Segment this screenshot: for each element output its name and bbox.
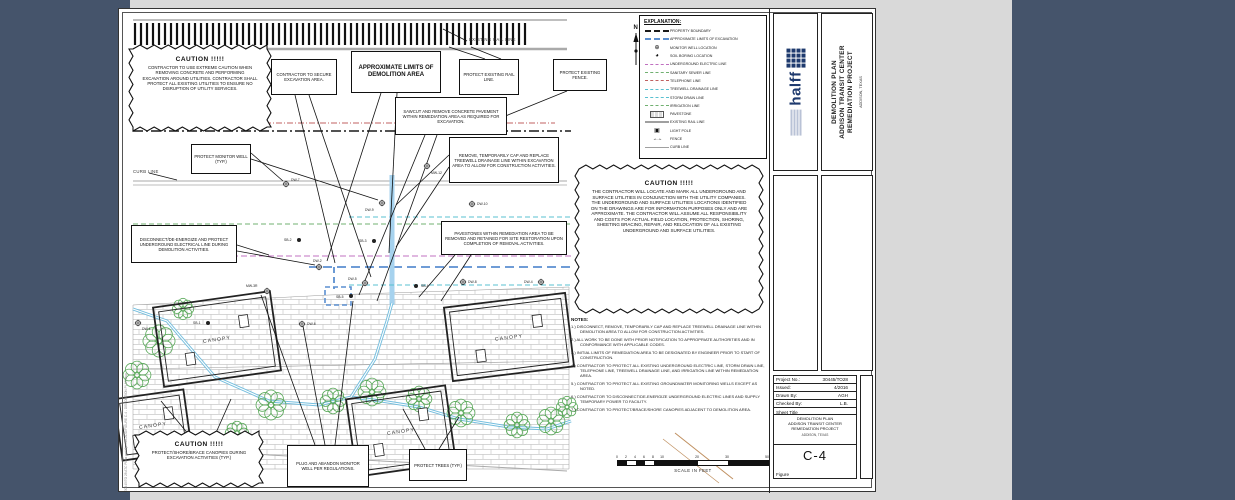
row-value: 4/2016 bbox=[834, 385, 848, 390]
titleblock-empty-box bbox=[773, 175, 818, 371]
note-item: 4.) CONTRACTOR TO PROTECT ALL EXISTING U… bbox=[571, 364, 767, 379]
notes-title: NOTES: bbox=[571, 317, 767, 322]
titleblock-company-box: halff bbox=[773, 13, 818, 171]
soil-boring-icon: SB-2 bbox=[284, 238, 301, 242]
figure-number: C-4 bbox=[774, 445, 856, 463]
legend-items: PROPERTY BOUNDARYAPPROXIMATE LIMITS OF E… bbox=[644, 27, 762, 151]
legend-item-label: FENCE bbox=[670, 137, 682, 141]
well-label: MW-12 bbox=[431, 171, 442, 175]
scale-segment bbox=[627, 461, 636, 465]
scale-segment bbox=[654, 461, 663, 465]
legend-swatch-line-icon bbox=[644, 94, 670, 102]
north-arrow-icon: N bbox=[633, 25, 638, 65]
scale-number: 2 bbox=[625, 455, 627, 459]
well-label: DW-10 bbox=[477, 202, 488, 206]
legend-swatch-pave-icon bbox=[644, 110, 670, 118]
sheet-title-label: Sheet Title bbox=[774, 408, 856, 415]
legend-item-label: PROPERTY BOUNDARY bbox=[670, 29, 711, 33]
scale-segment bbox=[663, 461, 698, 465]
note-item: 5.) CONTRACTOR TO PROTECT ALL EXISTING G… bbox=[571, 382, 767, 392]
legend-swatch-line-icon bbox=[644, 60, 670, 68]
scale-number: 20 bbox=[695, 455, 699, 459]
scale-bar-numbers: 0246810203050 bbox=[617, 455, 769, 460]
caution-title: CAUTION !!!!! bbox=[142, 56, 258, 63]
monitor-well-icon: DW-8 bbox=[460, 279, 477, 285]
callout-approximate-limits: APPROXIMATE LIMITS OF DEMOLITION AREA bbox=[351, 51, 441, 93]
callout-protect-rail: PROTECT EXISTING RAIL LINE. bbox=[459, 59, 519, 95]
note-item: 6.) CONTRACTOR TO DISCONNECT/DE-ENERGIZE… bbox=[571, 395, 767, 405]
legend-swatch-line-icon bbox=[644, 69, 670, 77]
note-item: 3.) INITIAL LIMITS OF REMEDIATION AREA T… bbox=[571, 351, 767, 361]
caution-body: PROTECT/SHORE/BRACE CANOPIES DURING EXCA… bbox=[145, 450, 253, 461]
legend-item-label: UNDERGROUND ELECTRIC LINE bbox=[670, 62, 727, 66]
curb-line-label: CURB LINE bbox=[133, 169, 159, 174]
legend-swatch-symbol-icon: ▣ bbox=[644, 127, 670, 135]
titleblock-project-title-box: DEMOLITION PLAN ADDISON TRANSIT CENTER R… bbox=[821, 13, 873, 171]
scale-number: 30 bbox=[725, 455, 729, 459]
project-title-line: REMEDIATION PROJECT bbox=[847, 45, 855, 139]
legend-item-label: IRRIGATION LINE bbox=[670, 104, 700, 108]
well-label: SB-3 bbox=[359, 239, 367, 243]
caution-title: CAUTION !!!!! bbox=[588, 180, 750, 187]
well-label: DW-5 bbox=[348, 277, 357, 281]
legend-item-label: MONITOR WELL LOCATION bbox=[670, 46, 717, 50]
sheet-title-location: ADDISON, TEXAS bbox=[776, 433, 854, 437]
well-label: SB-5 bbox=[336, 295, 344, 299]
titleblock-separator bbox=[769, 9, 770, 493]
existing-rail-line-label: EXISTING RAIL LINE bbox=[469, 37, 516, 42]
legend-swatch-symbol-icon: ◕ bbox=[644, 52, 670, 60]
legend-item-label: SOIL BORING LOCATION bbox=[670, 54, 712, 58]
well-label: DW-1 bbox=[142, 327, 151, 331]
caution-box-bottom-left: CAUTION !!!!! PROTECT/SHORE/BRACE CANOPI… bbox=[139, 435, 259, 483]
scale-segment bbox=[728, 461, 768, 465]
legend-swatch-line-icon bbox=[644, 35, 670, 43]
well-label: DW-2 bbox=[313, 259, 322, 263]
company-logo-icon bbox=[786, 48, 805, 67]
callout-sawcut: SAWCUT AND REMOVE CONCRETE PAVEMENT WITH… bbox=[395, 97, 507, 135]
callout-plug-abandon: PLUG AND ABANDON MONITOR WELL PER REGULA… bbox=[287, 445, 369, 487]
scale-bar: 0246810203050 SCALE IN FEET bbox=[617, 455, 769, 473]
callout-protect-monitor-well: PROTECT MONITOR WELL (TYP.) bbox=[191, 144, 251, 174]
well-label: SB-2 bbox=[284, 238, 292, 242]
titleblock-empty-box bbox=[821, 175, 873, 371]
notes-items: 1.) DISCONNECT, REMOVE, TEMPORARILY CAP … bbox=[571, 325, 767, 413]
legend-item-label: APPROXIMATE LIMITS OF EXCAVATION bbox=[670, 37, 738, 41]
legend-item: STORM DRAIN LINE bbox=[644, 93, 762, 101]
note-item: 2.) ALL WORK TO BE DONE WITH PRIOR NOTIF… bbox=[571, 338, 767, 348]
drawing-sheet: CANOPYCANOPYCANOPYCANOPYMW-12DW-7DW-9DW-… bbox=[118, 8, 876, 492]
company-logo-text: halff bbox=[787, 71, 804, 105]
legend-item: TELEPHONE LINE bbox=[644, 77, 762, 85]
well-label: DW-9 bbox=[365, 208, 374, 212]
svg-text:N: N bbox=[634, 25, 638, 31]
note-item: 7.) CONTRACTOR TO PROTECT/BRACE/SHORE CA… bbox=[571, 408, 767, 413]
scale-number: 0 bbox=[616, 455, 618, 459]
legend-item: ▣LIGHT POLE bbox=[644, 127, 762, 135]
legend-item-label: LIGHT POLE bbox=[670, 129, 691, 133]
row-label: Checked By: bbox=[776, 401, 802, 406]
legend-swatch-symbol-icon: ⊕ bbox=[644, 44, 670, 52]
legend-item: PAVESTONE bbox=[644, 110, 762, 118]
caution-box-right: CAUTION !!!!! THE CONTRACTOR WILL LOCATE… bbox=[579, 169, 759, 309]
titleblock-empty-strip bbox=[860, 375, 873, 479]
table-row: Checked By: L.B. bbox=[774, 400, 856, 408]
scale-segment bbox=[618, 461, 627, 465]
note-item: 1.) DISCONNECT, REMOVE, TEMPORARILY CAP … bbox=[571, 325, 767, 335]
callout-protect-trees: PROTECT TREES (TYP.) bbox=[409, 449, 467, 481]
scale-number: 6 bbox=[643, 455, 645, 459]
callout-protect-fence: PROTECT EXISTING FENCE. bbox=[553, 59, 607, 91]
scale-segment bbox=[698, 461, 728, 465]
callout-pavestones: PAVESTONES WITHIN REMEDIATION AREA TO BE… bbox=[441, 221, 567, 255]
callout-secure-excavation: CONTRACTOR TO SECURE EXCAVATION AREA. bbox=[271, 59, 337, 95]
row-value: L.B. bbox=[840, 401, 848, 406]
legend-explanation: EXPLANATION: PROPERTY BOUNDARYAPPROXIMAT… bbox=[639, 15, 767, 159]
monitor-well-icon: DW-7 bbox=[283, 178, 300, 187]
soil-boring-icon: SB-3 bbox=[359, 239, 376, 243]
scale-number: 8 bbox=[652, 455, 654, 459]
monitor-well-icon: DW-10 bbox=[469, 201, 488, 207]
row-value: AGH bbox=[838, 393, 848, 398]
drawing-filepath-label: 30445/TO 28 ATC Plans and Specs/CADD/FIG… bbox=[124, 373, 128, 491]
legend-swatch-line-icon bbox=[644, 118, 670, 126]
legend-item-label: PAVESTONE bbox=[670, 112, 691, 116]
row-label: Issued: bbox=[776, 385, 791, 390]
sheet-title-line: REMEDIATION PROJECT bbox=[776, 427, 854, 432]
caution-body: CONTRACTOR TO USE EXTREME CAUTION WHEN R… bbox=[142, 65, 258, 91]
legend-item: CURB LINE bbox=[644, 143, 762, 151]
table-row: Drawn By: AGH bbox=[774, 392, 856, 400]
legend-item: ◕SOIL BORING LOCATION bbox=[644, 52, 762, 60]
scale-segment bbox=[645, 461, 654, 465]
well-label: DW-6 bbox=[307, 322, 316, 326]
legend-swatch-line-icon bbox=[644, 85, 670, 93]
screenshot-stage: CANOPYCANOPYCANOPYCANOPYMW-12DW-7DW-9DW-… bbox=[0, 0, 1235, 500]
project-info-table: Project No.: 30445/TO28 Issued: 4/2016 D… bbox=[773, 375, 857, 479]
caution-box-top-left: CAUTION !!!!! CONTRACTOR TO USE EXTREME … bbox=[133, 49, 267, 127]
callout-remove-treewell: REMOVE, TEMPORARILY CAP AND REPLACE TREE… bbox=[449, 137, 559, 183]
legend-item: EXISTING RAIL LINE bbox=[644, 118, 762, 126]
legend-item: UNDERGROUND ELECTRIC LINE bbox=[644, 60, 762, 68]
row-label: Drawn By: bbox=[776, 393, 797, 398]
caution-body: THE CONTRACTOR WILL LOCATE AND MARK ALL … bbox=[588, 189, 750, 233]
legend-swatch-line-icon bbox=[644, 102, 670, 110]
well-label: DW-8 bbox=[468, 280, 477, 284]
project-location: ADDISON, TEXAS bbox=[859, 45, 863, 139]
scale-number: 4 bbox=[634, 455, 636, 459]
legend-item-label: TELEPHONE LINE bbox=[670, 79, 701, 83]
table-row: Issued: 4/2016 bbox=[774, 384, 856, 392]
well-label: MW-3R bbox=[246, 284, 258, 288]
scale-number: 10 bbox=[660, 455, 664, 459]
scale-segment bbox=[636, 461, 645, 465]
monitor-well-icon: DW-4 bbox=[524, 279, 544, 285]
project-title-line: DEMOLITION PLAN bbox=[831, 45, 839, 139]
legend-item-label: SANITARY SEWER LINE bbox=[670, 71, 711, 75]
scale-number: 50 bbox=[765, 455, 769, 459]
property-boundary-hatch bbox=[135, 23, 525, 45]
legend-item-label: TREEWELL DRAINAGE LINE bbox=[670, 87, 718, 91]
caution-title: CAUTION !!!!! bbox=[145, 441, 253, 448]
soil-boring-icon: SB-4 bbox=[414, 284, 429, 288]
notes-block: NOTES: 1.) DISCONNECT, REMOVE, TEMPORARI… bbox=[571, 317, 767, 416]
well-label: SB-1 bbox=[193, 321, 201, 325]
scale-bar-segments bbox=[617, 460, 769, 466]
legend-item-label: CURB LINE bbox=[670, 145, 689, 149]
legend-swatch-line-icon bbox=[644, 27, 670, 35]
legend-title: EXPLANATION: bbox=[644, 19, 762, 25]
monitor-well-icon: DW-9 bbox=[365, 200, 385, 212]
legend-swatch-line-icon bbox=[644, 143, 670, 151]
row-value: 30445/TO28 bbox=[823, 377, 848, 382]
figure-label: Figure bbox=[776, 472, 789, 477]
legend-item: APPROXIMATE LIMITS OF EXCAVATION bbox=[644, 35, 762, 43]
callout-disconnect-deenergize: DISCONNECT/DE-ENERGIZE AND PROTECT UNDER… bbox=[131, 225, 237, 263]
row-label: Project No.: bbox=[776, 377, 800, 382]
legend-swatch-fence-icon: ↔ bbox=[644, 135, 670, 143]
legend-item: ⊕MONITOR WELL LOCATION bbox=[644, 44, 762, 52]
sheet-title-block: DEMOLITION PLAN ADDISON TRANSIT CENTER R… bbox=[774, 415, 856, 445]
scale-bar-label: SCALE IN FEET bbox=[617, 468, 769, 473]
legend-item: SANITARY SEWER LINE bbox=[644, 68, 762, 76]
legend-item: ↔FENCE bbox=[644, 135, 762, 143]
table-row: Project No.: 30445/TO28 bbox=[774, 376, 856, 384]
legend-item: IRRIGATION LINE bbox=[644, 102, 762, 110]
company-address-lines bbox=[790, 110, 801, 136]
legend-item-label: STORM DRAIN LINE bbox=[670, 96, 704, 100]
legend-swatch-line-icon bbox=[644, 77, 670, 85]
well-label: DW-7 bbox=[291, 178, 300, 182]
well-label: SB-4 bbox=[421, 284, 429, 288]
project-title-line: ADDISON TRANSIT CENTER bbox=[839, 45, 847, 139]
legend-item: PROPERTY BOUNDARY bbox=[644, 27, 762, 35]
legend-item-label: EXISTING RAIL LINE bbox=[670, 120, 705, 124]
legend-item: TREEWELL DRAINAGE LINE bbox=[644, 85, 762, 93]
well-label: DW-4 bbox=[524, 280, 533, 284]
